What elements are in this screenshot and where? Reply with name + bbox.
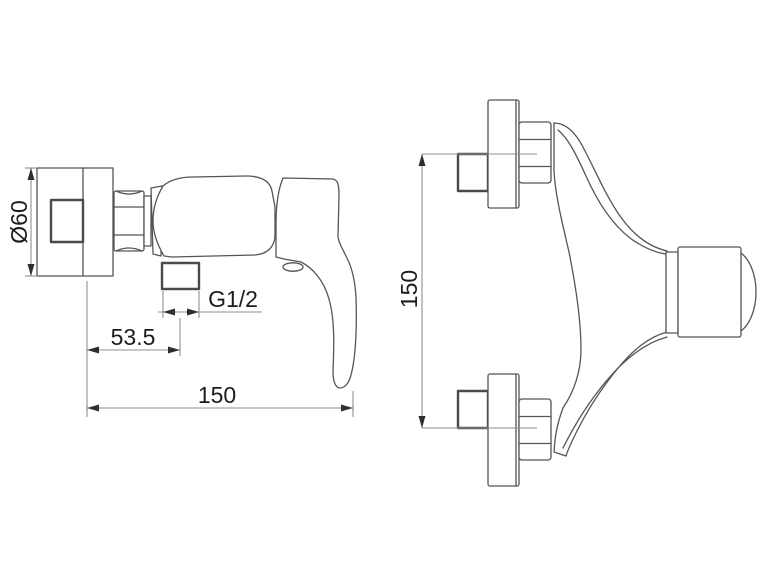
dimension-diameter: Ø60	[6, 168, 37, 276]
arrowhead-right	[187, 309, 199, 316]
dimension-center-distance: 150	[396, 154, 426, 428]
arrowhead-up	[28, 168, 35, 180]
arrowhead-left	[87, 347, 99, 354]
arrowhead-right	[168, 347, 180, 354]
shower-outlet	[162, 263, 199, 289]
wall-supply-pipe-bottom	[458, 391, 488, 428]
arrowhead-up	[419, 154, 426, 166]
arrowhead-left	[163, 309, 175, 316]
handle-end-cap	[741, 253, 756, 331]
handle-collar	[666, 252, 678, 333]
faucet-technical-drawing: Ø60 G1/2 53.5	[0, 0, 772, 579]
dimension-outlet-offset: 53.5	[87, 281, 180, 417]
hex-nut-top	[519, 122, 551, 183]
dimension-overall-width: 150	[87, 382, 353, 417]
bottom-connection	[422, 374, 551, 486]
hex-nut	[114, 191, 144, 251]
side-view: Ø60 G1/2 53.5	[6, 168, 356, 417]
dim-label-overall-width: 150	[198, 382, 236, 408]
dimension-outlet-thread: G1/2	[158, 286, 262, 318]
handle-indicator-cap	[283, 263, 303, 271]
dim-label-thread: G1/2	[208, 286, 258, 312]
hex-nut-bottom	[519, 399, 551, 460]
dim-label-diameter: Ø60	[6, 200, 32, 243]
body-collar	[144, 196, 151, 246]
front-view: 150	[396, 100, 756, 486]
top-connection	[422, 100, 551, 208]
lever-handle	[276, 178, 356, 388]
arrowhead-down	[28, 264, 35, 276]
technical-drawing-canvas: Ø60 G1/2 53.5	[0, 0, 772, 579]
mixer-body-front	[554, 123, 667, 456]
wall-supply-pipe-top	[458, 154, 488, 191]
handle-cylinder	[678, 247, 741, 337]
arrowhead-left	[87, 405, 99, 412]
flange-bottom	[488, 374, 519, 486]
arrowhead-right	[341, 405, 353, 412]
dim-label-outlet-offset: 53.5	[111, 324, 156, 350]
wall-supply-pipe	[51, 200, 83, 242]
arrowhead-down	[419, 416, 426, 428]
mixer-body	[153, 176, 275, 257]
dim-label-center-distance: 150	[396, 270, 422, 308]
